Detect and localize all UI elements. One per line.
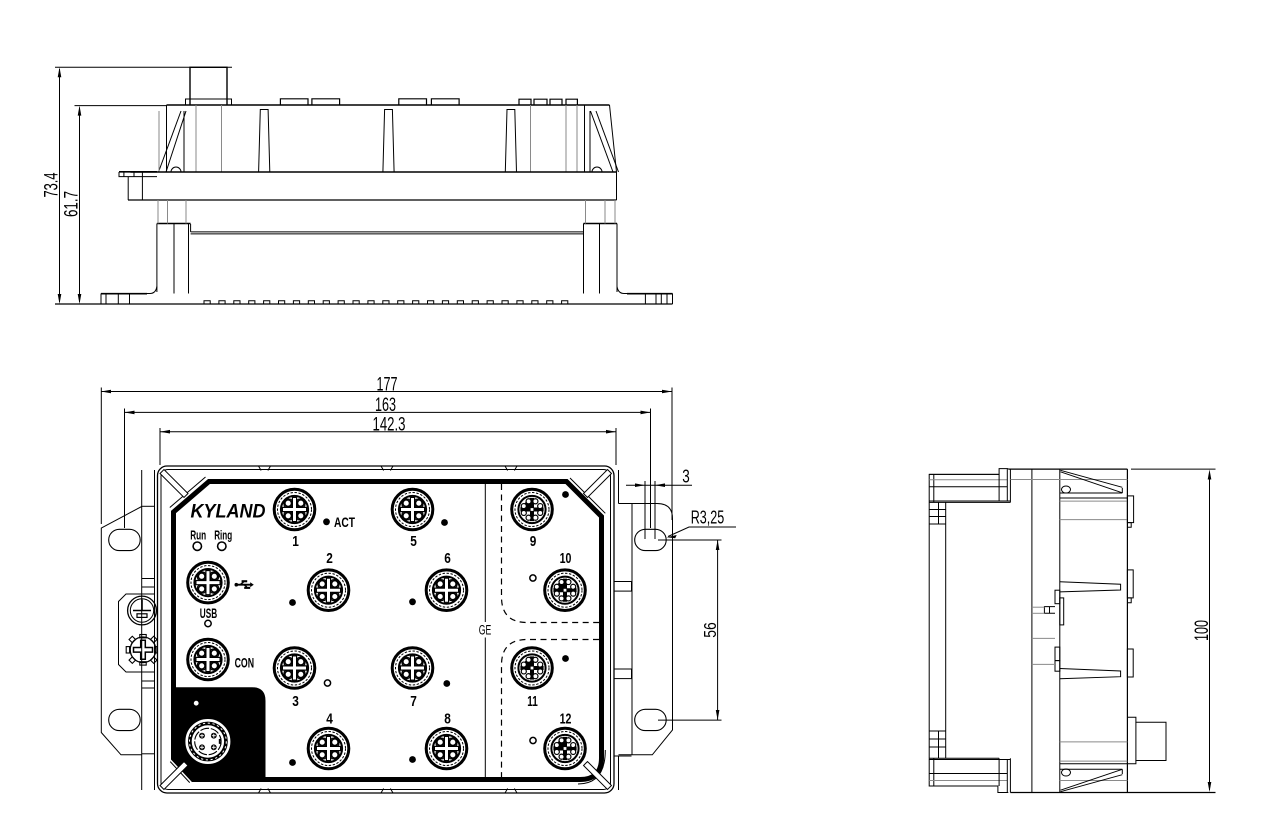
svg-text:73.4: 73.4 [41, 172, 62, 197]
svg-text:3: 3 [682, 467, 690, 487]
svg-text:ACT: ACT [334, 515, 356, 530]
svg-text:6: 6 [444, 551, 451, 567]
svg-text:CON: CON [235, 655, 255, 671]
svg-text:7: 7 [410, 694, 417, 710]
svg-text:4: 4 [326, 712, 333, 728]
svg-text:9: 9 [530, 534, 537, 550]
svg-text:2: 2 [326, 551, 333, 567]
svg-text:USB: USB [200, 605, 217, 621]
svg-text:8: 8 [444, 712, 451, 728]
svg-text:100: 100 [1192, 620, 1213, 641]
svg-text:1: 1 [292, 534, 299, 550]
svg-text:177: 177 [377, 375, 398, 396]
svg-text:Run: Run [190, 528, 206, 542]
svg-text:142.3: 142.3 [373, 415, 406, 436]
svg-text:12: 12 [560, 712, 572, 728]
svg-text:KYLAND: KYLAND [191, 502, 266, 523]
svg-text:R3,25: R3,25 [691, 507, 725, 528]
svg-text:3: 3 [292, 694, 299, 710]
svg-text:10: 10 [560, 551, 572, 567]
svg-text:61.7: 61.7 [62, 191, 83, 217]
svg-text:Ring: Ring [214, 528, 232, 542]
svg-text:11: 11 [527, 694, 538, 710]
svg-text:5: 5 [410, 534, 417, 550]
svg-text:163: 163 [375, 395, 396, 416]
svg-text:56: 56 [700, 622, 720, 638]
svg-text:GE: GE [479, 623, 492, 638]
